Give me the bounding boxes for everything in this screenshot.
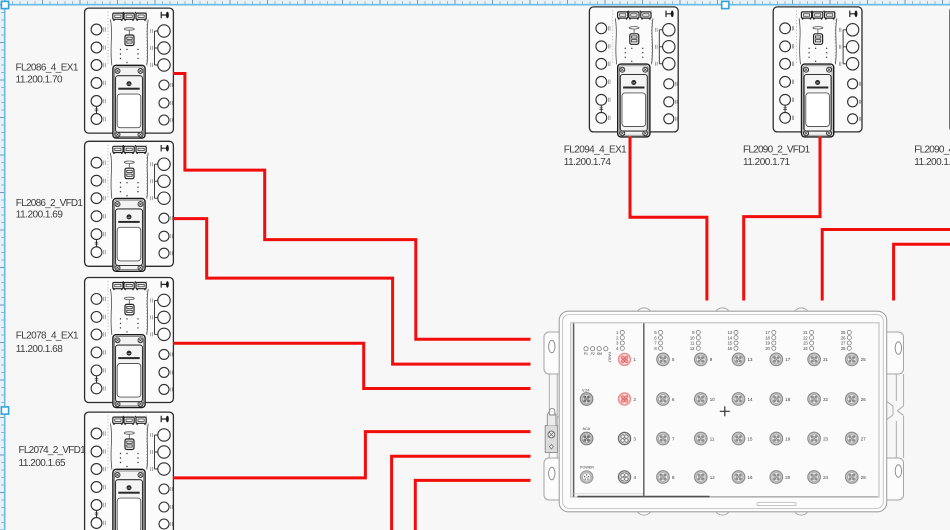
svg-text:11.200.1.74: 11.200.1.74 [564, 157, 612, 168]
svg-text:P2: P2 [591, 352, 595, 356]
svg-text:23: 23 [823, 436, 828, 441]
svg-text:FL2090_2_VFD1: FL2090_2_VFD1 [743, 144, 811, 155]
svg-text:20: 20 [785, 475, 790, 480]
svg-text:25: 25 [861, 357, 866, 362]
svg-text:14: 14 [748, 397, 753, 402]
svg-text:13: 13 [748, 357, 753, 362]
svg-text:FL2090_4_EX1: FL2090_4_EX1 [914, 144, 950, 155]
svg-text:FL2094_4_EX1: FL2094_4_EX1 [564, 144, 627, 155]
svg-text:FL2086_2_VFD1: FL2086_2_VFD1 [16, 198, 84, 209]
svg-text:21: 21 [823, 357, 828, 362]
svg-text:V.24: V.24 [582, 388, 589, 392]
svg-text:11.200.1.77: 11.200.1.77 [914, 157, 950, 168]
svg-text:28: 28 [861, 475, 866, 480]
svg-text:17: 17 [785, 357, 790, 362]
svg-text:11.200.1.71: 11.200.1.71 [743, 157, 791, 168]
svg-text:POWER: POWER [580, 465, 594, 469]
svg-text:FL2078_4_EX1: FL2078_4_EX1 [16, 331, 79, 342]
svg-text:11.200.1.68: 11.200.1.68 [16, 344, 64, 355]
svg-text:11.200.1.69: 11.200.1.69 [16, 210, 64, 221]
svg-text:27: 27 [861, 436, 866, 441]
svg-text:19: 19 [785, 436, 790, 441]
svg-text:11.200.1.65: 11.200.1.65 [19, 458, 67, 469]
svg-text:ACA: ACA [583, 427, 591, 431]
svg-text:FL2086_4_EX1: FL2086_4_EX1 [16, 63, 79, 74]
svg-text:26: 26 [861, 397, 866, 402]
svg-text:11.200.1.70: 11.200.1.70 [16, 75, 64, 86]
svg-text:RM: RM [597, 352, 602, 356]
svg-text:11: 11 [710, 436, 715, 441]
svg-text:FAULT: FAULT [608, 352, 612, 363]
svg-text:FL2074_2_VFD1: FL2074_2_VFD1 [19, 445, 87, 456]
svg-text:22: 22 [823, 397, 828, 402]
svg-text:24: 24 [823, 475, 828, 480]
svg-text:16: 16 [748, 475, 753, 480]
svg-text:10: 10 [710, 397, 715, 402]
svg-text:18: 18 [785, 397, 790, 402]
svg-text:P1: P1 [584, 352, 588, 356]
svg-text:12: 12 [710, 475, 715, 480]
svg-text:15: 15 [748, 436, 753, 441]
